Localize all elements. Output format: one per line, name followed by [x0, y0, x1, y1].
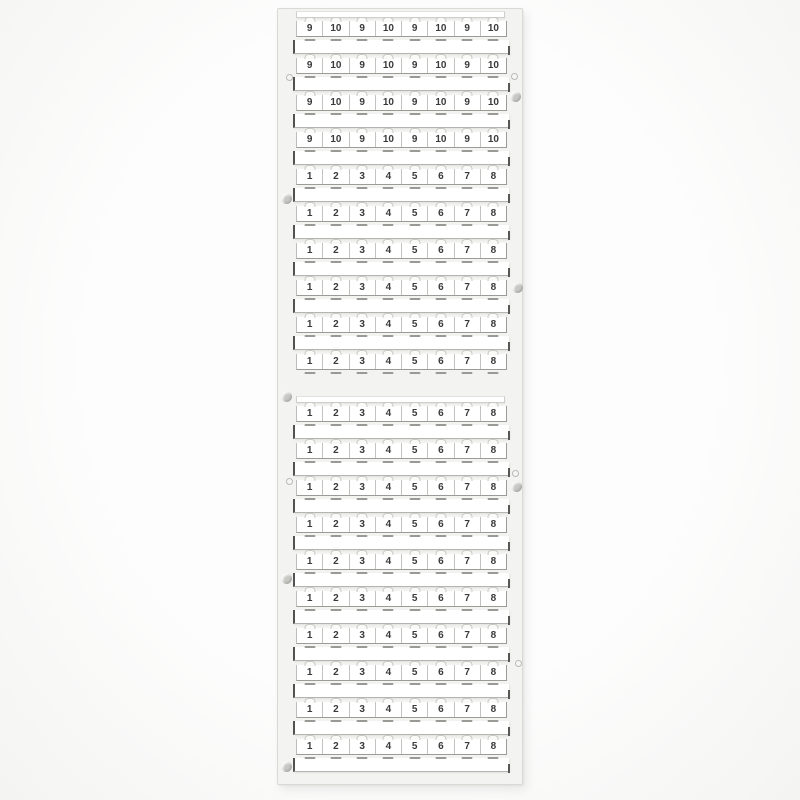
marker-tab: 2	[323, 206, 349, 221]
marker-tab: 5	[402, 665, 428, 680]
marker-tab: 9	[350, 21, 376, 36]
blank-strip	[293, 721, 509, 735]
marker-tab-strip: 12345678	[296, 591, 507, 607]
marker-tab: 7	[455, 243, 481, 258]
blank-strip	[293, 40, 509, 54]
marker-tab: 1	[297, 354, 323, 369]
blank-strip	[293, 151, 509, 165]
marker-tab: 3	[350, 169, 376, 184]
blank-strip	[293, 299, 509, 313]
marker-tab: 6	[428, 406, 454, 421]
lower-marker-sheet: 1234567812345678123456781234567812345678…	[278, 396, 522, 784]
marker-row: 12345678	[278, 480, 522, 513]
marker-tab: 2	[323, 406, 349, 421]
marker-tab: 7	[455, 206, 481, 221]
blank-strip	[293, 225, 509, 239]
blank-strip	[293, 499, 509, 513]
marker-tab: 8	[481, 443, 506, 458]
marker-tab: 3	[350, 517, 376, 532]
marker-row: 12345678	[278, 206, 522, 239]
marker-tab: 10	[481, 21, 506, 36]
marker-tab: 7	[455, 702, 481, 717]
marker-tab: 2	[323, 443, 349, 458]
marker-tab: 2	[323, 665, 349, 680]
marker-tab: 8	[481, 317, 506, 332]
marker-tab: 9	[455, 21, 481, 36]
marker-tab: 9	[455, 95, 481, 110]
marker-tab: 10	[323, 132, 349, 147]
marker-tab: 6	[428, 443, 454, 458]
marker-tab-strip: 12345678	[296, 280, 507, 296]
marker-tab: 9	[350, 95, 376, 110]
blank-strip	[293, 610, 509, 624]
marker-tab: 8	[481, 591, 506, 606]
blank-strip	[293, 536, 509, 550]
marker-tab: 3	[350, 243, 376, 258]
mounting-hole	[286, 74, 293, 81]
marker-tab-strip: 12345678	[296, 317, 507, 333]
marker-tab: 4	[376, 517, 402, 532]
marker-tab: 7	[455, 280, 481, 295]
marker-tab: 8	[481, 206, 506, 221]
mounting-hole	[512, 282, 523, 293]
marker-tab: 4	[376, 243, 402, 258]
marker-tab: 9	[297, 132, 323, 147]
marker-tab: 10	[376, 58, 402, 73]
marker-tab: 6	[428, 665, 454, 680]
marker-tab: 7	[455, 739, 481, 754]
marker-tab: 8	[481, 739, 506, 754]
marker-tab: 9	[297, 21, 323, 36]
marker-tab: 3	[350, 406, 376, 421]
marker-tab: 1	[297, 480, 323, 495]
marker-tab: 10	[428, 95, 454, 110]
marker-tab: 5	[402, 480, 428, 495]
marker-tab: 1	[297, 702, 323, 717]
marker-tab: 8	[481, 702, 506, 717]
blank-strip	[293, 425, 509, 439]
marker-tab: 4	[376, 554, 402, 569]
marker-tab: 7	[455, 406, 481, 421]
marker-tab: 2	[323, 243, 349, 258]
marker-tab: 5	[402, 628, 428, 643]
marker-tab: 10	[481, 58, 506, 73]
marker-tab-strip: 910910910910	[296, 58, 507, 74]
marker-tab: 7	[455, 665, 481, 680]
marker-tab: 4	[376, 317, 402, 332]
marker-row: 12345678	[278, 443, 522, 476]
marker-tab: 2	[323, 169, 349, 184]
marker-tab-strip: 12345678	[296, 702, 507, 718]
marker-tab: 9	[402, 95, 428, 110]
marker-tab: 3	[350, 280, 376, 295]
marker-tab: 4	[376, 406, 402, 421]
marker-tab-strip: 12345678	[296, 354, 507, 370]
marker-tab: 4	[376, 702, 402, 717]
marker-tab: 5	[402, 517, 428, 532]
marker-tab: 7	[455, 354, 481, 369]
marker-tab: 10	[481, 132, 506, 147]
blank-strip	[293, 684, 509, 698]
marker-tab: 8	[481, 628, 506, 643]
marker-row: 12345678	[278, 243, 522, 276]
marker-tab: 1	[297, 206, 323, 221]
marker-tab: 6	[428, 628, 454, 643]
marker-tab: 2	[323, 702, 349, 717]
marker-tab: 6	[428, 702, 454, 717]
blank-strip	[293, 114, 509, 128]
marker-tab-strip: 12345678	[296, 665, 507, 681]
marker-tab: 4	[376, 169, 402, 184]
marker-tab: 2	[323, 480, 349, 495]
marker-tab: 5	[402, 317, 428, 332]
marker-tab: 4	[376, 591, 402, 606]
top-rail	[296, 11, 505, 18]
marker-tab: 6	[428, 317, 454, 332]
marker-tab: 4	[376, 739, 402, 754]
mounting-hole	[286, 478, 293, 485]
marker-tab: 1	[297, 517, 323, 532]
marker-tab-strip: 12345678	[296, 169, 507, 185]
marker-tab: 8	[481, 280, 506, 295]
marker-tab: 3	[350, 317, 376, 332]
marker-tab: 1	[297, 243, 323, 258]
marker-tab: 8	[481, 169, 506, 184]
blank-strip	[293, 462, 509, 476]
marker-tab: 5	[402, 243, 428, 258]
marker-row: 12345678	[278, 628, 522, 661]
marker-tab: 4	[376, 280, 402, 295]
marker-tab: 6	[428, 591, 454, 606]
marker-row: 12345678	[278, 665, 522, 698]
marker-row: 910910910910	[278, 95, 522, 128]
marker-tab: 5	[402, 354, 428, 369]
marker-tab: 10	[323, 95, 349, 110]
mounting-hole	[515, 660, 522, 667]
marker-tab: 10	[376, 95, 402, 110]
upper-marker-sheet: 9109109109109109109109109109109109109109…	[278, 11, 522, 384]
marker-row: 12345678	[278, 517, 522, 550]
mounting-hole	[512, 470, 519, 477]
marker-tab: 3	[350, 554, 376, 569]
marker-tab: 2	[323, 354, 349, 369]
mounting-hole	[511, 73, 518, 80]
marker-tab: 9	[350, 58, 376, 73]
marker-tab: 3	[350, 354, 376, 369]
blank-strip	[293, 188, 509, 202]
marker-tab-strip: 12345678	[296, 628, 507, 644]
mounting-hole	[511, 481, 522, 492]
marker-tab: 6	[428, 354, 454, 369]
marker-tab-strip: 12345678	[296, 406, 507, 422]
marker-row: 910910910910	[278, 58, 522, 91]
marker-tab: 9	[350, 132, 376, 147]
marker-row: 12345678	[278, 591, 522, 624]
marker-tab: 10	[376, 132, 402, 147]
marker-row: 12345678	[278, 406, 522, 439]
blank-strip	[293, 262, 509, 276]
marker-row: 910910910910	[278, 132, 522, 165]
marker-tab: 5	[402, 591, 428, 606]
marker-tab: 10	[323, 58, 349, 73]
marker-tab: 5	[402, 406, 428, 421]
marker-row: 12345678	[278, 739, 522, 772]
marker-tab: 8	[481, 354, 506, 369]
marker-tab-strip: 910910910910	[296, 95, 507, 111]
blank-strip	[293, 573, 509, 587]
marker-tab: 4	[376, 206, 402, 221]
marker-tab: 6	[428, 739, 454, 754]
marker-tab: 6	[428, 169, 454, 184]
mounting-hole	[510, 91, 521, 102]
marker-tab: 3	[350, 206, 376, 221]
marker-tab: 2	[323, 739, 349, 754]
marker-tab: 4	[376, 480, 402, 495]
marker-tab: 6	[428, 280, 454, 295]
marker-tab: 10	[323, 21, 349, 36]
marker-tab-strip: 12345678	[296, 739, 507, 755]
marker-tab: 1	[297, 591, 323, 606]
blank-strip	[293, 758, 509, 772]
marker-tab-strip: 12345678	[296, 206, 507, 222]
marker-tab: 9	[297, 95, 323, 110]
marker-tab-strip: 12345678	[296, 554, 507, 570]
marker-tab: 2	[323, 628, 349, 643]
marker-tab: 2	[323, 317, 349, 332]
marker-tab: 10	[428, 21, 454, 36]
marker-tab: 9	[455, 132, 481, 147]
marker-card: 9109109109109109109109109109109109109109…	[277, 8, 523, 785]
marker-tab: 3	[350, 628, 376, 643]
marker-tab: 1	[297, 554, 323, 569]
marker-tab: 5	[402, 554, 428, 569]
marker-tab: 5	[402, 206, 428, 221]
marker-tab: 6	[428, 517, 454, 532]
mounting-hole	[281, 391, 292, 402]
marker-tab: 8	[481, 480, 506, 495]
marker-tab: 1	[297, 665, 323, 680]
marker-tab: 3	[350, 480, 376, 495]
marker-tab: 1	[297, 317, 323, 332]
marker-tab: 8	[481, 406, 506, 421]
marker-tab: 10	[428, 132, 454, 147]
marker-tab: 8	[481, 243, 506, 258]
marker-tab-strip: 12345678	[296, 517, 507, 533]
marker-tab: 6	[428, 554, 454, 569]
marker-tab: 3	[350, 702, 376, 717]
marker-tab: 7	[455, 317, 481, 332]
marker-row: 12345678	[278, 280, 522, 313]
marker-tab: 3	[350, 591, 376, 606]
marker-tab: 7	[455, 554, 481, 569]
marker-tab: 3	[350, 739, 376, 754]
marker-tab: 9	[402, 21, 428, 36]
marker-tab: 9	[402, 58, 428, 73]
marker-tab: 8	[481, 554, 506, 569]
marker-row: 12345678	[278, 354, 522, 370]
marker-row: 12345678	[278, 317, 522, 350]
marker-tab-strip: 12345678	[296, 243, 507, 259]
marker-tab: 7	[455, 591, 481, 606]
marker-tab: 8	[481, 665, 506, 680]
marker-tab: 3	[350, 665, 376, 680]
top-rail	[296, 396, 505, 403]
marker-tab: 2	[323, 280, 349, 295]
marker-tab: 8	[481, 517, 506, 532]
marker-tab: 7	[455, 169, 481, 184]
marker-tab: 6	[428, 243, 454, 258]
marker-row: 910910910910	[278, 21, 522, 54]
blank-strip	[293, 647, 509, 661]
marker-tab: 2	[323, 517, 349, 532]
marker-tab: 9	[402, 132, 428, 147]
marker-tab: 6	[428, 206, 454, 221]
marker-tab: 9	[455, 58, 481, 73]
marker-tab: 1	[297, 443, 323, 458]
marker-tab-strip: 12345678	[296, 480, 507, 496]
marker-tab: 1	[297, 406, 323, 421]
marker-tab: 5	[402, 169, 428, 184]
marker-tab: 5	[402, 280, 428, 295]
marker-tab-strip: 910910910910	[296, 132, 507, 148]
blank-strip	[293, 336, 509, 350]
marker-tab: 7	[455, 628, 481, 643]
marker-row: 12345678	[278, 169, 522, 202]
mounting-hole	[281, 193, 292, 204]
blank-strip	[293, 77, 509, 91]
marker-tab: 1	[297, 169, 323, 184]
marker-tab: 10	[481, 95, 506, 110]
marker-tab: 10	[428, 58, 454, 73]
marker-tab: 6	[428, 480, 454, 495]
marker-tab: 4	[376, 354, 402, 369]
marker-row: 12345678	[278, 702, 522, 735]
marker-tab: 7	[455, 517, 481, 532]
marker-tab: 2	[323, 554, 349, 569]
marker-tab-strip: 910910910910	[296, 21, 507, 37]
marker-tab: 3	[350, 443, 376, 458]
marker-tab: 7	[455, 480, 481, 495]
marker-tab: 4	[376, 628, 402, 643]
marker-tab: 4	[376, 443, 402, 458]
marker-tab: 5	[402, 443, 428, 458]
marker-tab-strip: 12345678	[296, 443, 507, 459]
marker-tab: 1	[297, 280, 323, 295]
marker-tab: 10	[376, 21, 402, 36]
marker-tab: 7	[455, 443, 481, 458]
marker-tab: 1	[297, 739, 323, 754]
marker-row: 12345678	[278, 554, 522, 587]
marker-tab: 1	[297, 628, 323, 643]
marker-tab: 5	[402, 739, 428, 754]
marker-tab: 4	[376, 665, 402, 680]
marker-tab: 2	[323, 591, 349, 606]
marker-tab: 9	[297, 58, 323, 73]
mounting-hole	[281, 761, 292, 772]
marker-tab: 5	[402, 702, 428, 717]
mounting-hole	[281, 573, 292, 584]
